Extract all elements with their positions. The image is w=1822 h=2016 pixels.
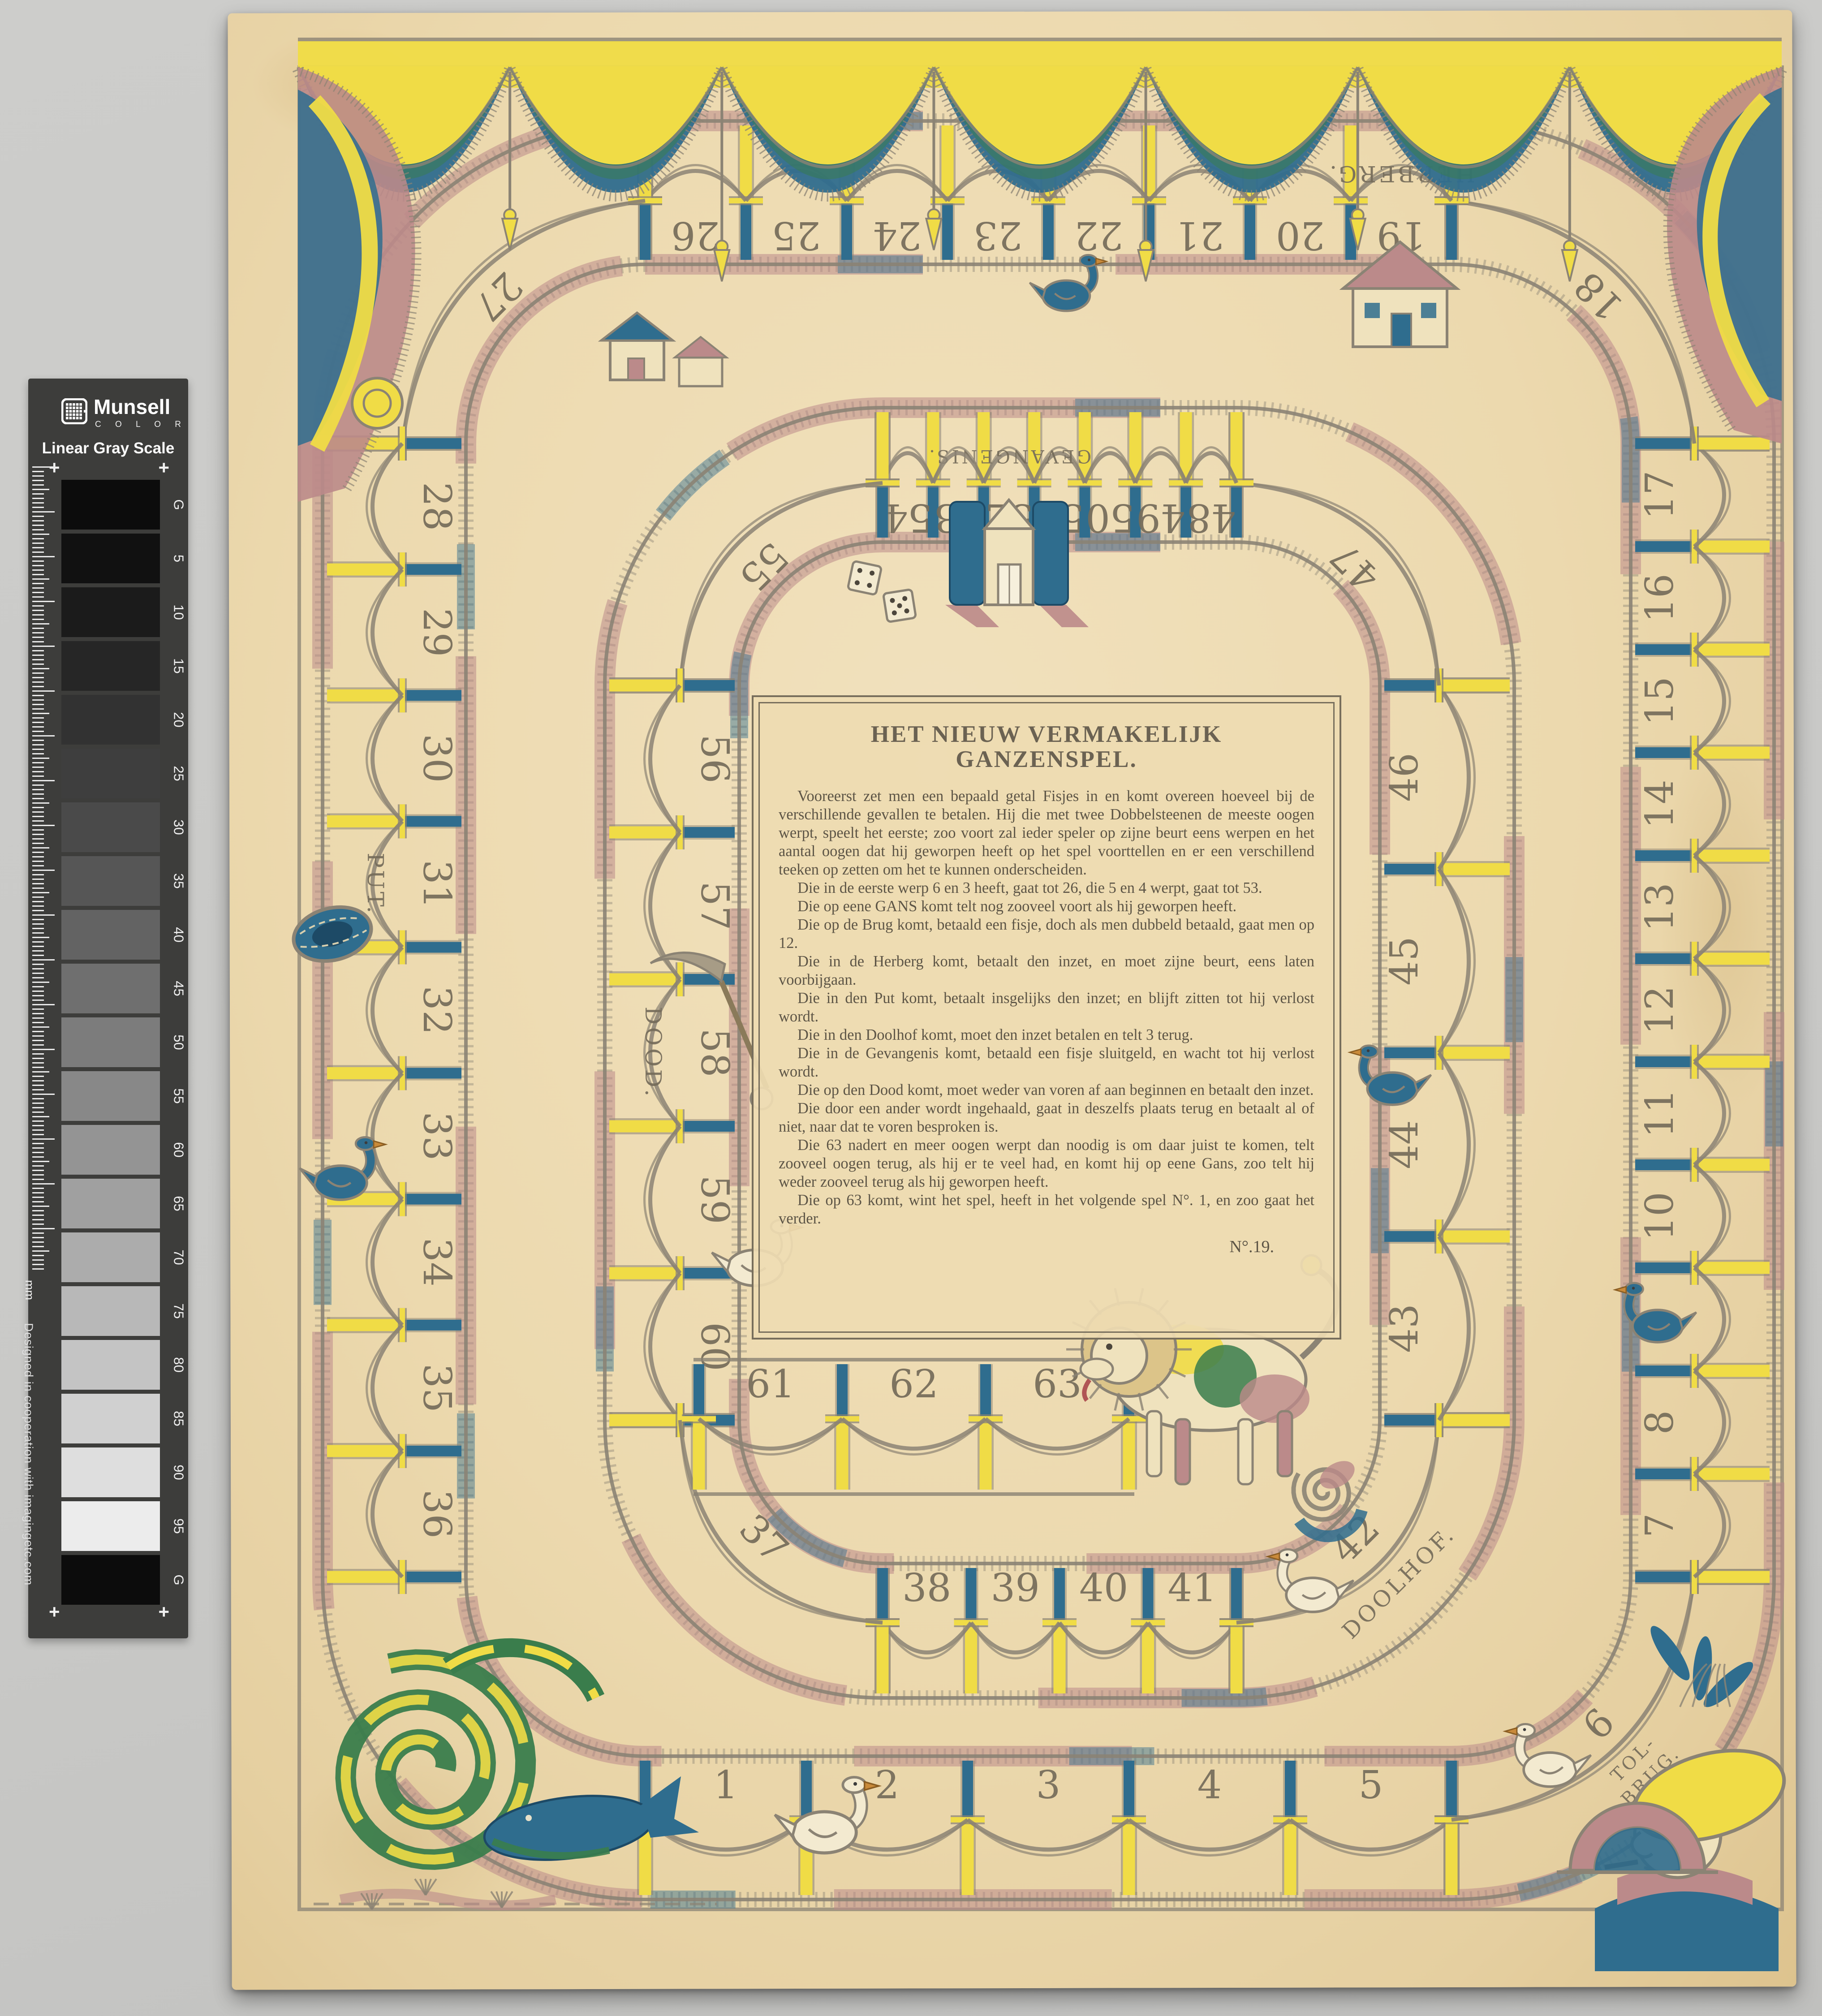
space-number: 24 (873, 213, 922, 258)
space-7: 7 (1637, 1513, 1682, 1538)
rule-paragraph: Vooreerst zet men een bepaald getal Fisj… (779, 787, 1314, 879)
space-label: DOOD. (640, 1007, 666, 1099)
arch-swag (1129, 1820, 1290, 1850)
gray-patch (61, 1071, 160, 1121)
space-number: 25 (772, 213, 821, 258)
gray-patch (61, 1340, 160, 1390)
space-number: 28 (414, 482, 459, 531)
space-label-text: PUT. (362, 853, 388, 916)
space-10: 10 (1637, 1192, 1682, 1241)
gray-patch (61, 802, 160, 852)
space-4: 4 (1197, 1763, 1222, 1808)
gray-patch-label: 55 (154, 1086, 204, 1106)
gray-patch-label: 40 (154, 925, 204, 945)
space-number: 58 (692, 1028, 737, 1077)
space-8: 8 (1637, 1410, 1682, 1435)
space-number: 41 (1168, 1566, 1217, 1611)
arch-swag (650, 685, 681, 832)
space-31: 31 (414, 860, 459, 909)
space-49: 49 (1136, 495, 1185, 540)
gray-patch (61, 587, 160, 637)
arch-swag (373, 444, 403, 569)
arch-swag (1439, 1236, 1469, 1420)
arch-swag (373, 569, 403, 695)
space-48: 48 (1187, 495, 1236, 540)
gray-patch-label: 15 (154, 656, 204, 676)
space-54: 54 (883, 495, 932, 540)
space-45: 45 (1382, 936, 1427, 985)
gray-patch (61, 856, 160, 906)
space-number: 8 (1637, 1410, 1682, 1435)
gray-patch-label: 50 (154, 1033, 204, 1052)
gray-patch-label: 25 (154, 764, 204, 784)
munsell-brand-text: Munsell (94, 395, 170, 419)
gray-patch-label: G (154, 1570, 204, 1590)
rule-paragraph: Die op eene GANS komt telt nog zooveel v… (779, 897, 1314, 916)
space-23: 23 (973, 213, 1022, 258)
space-32: 32 (414, 986, 459, 1034)
rule-paragraph: Die in de Herberg komt, betaalt den inze… (779, 952, 1314, 989)
arch-swag (1290, 1820, 1452, 1850)
space-number: 22 (1074, 213, 1123, 258)
space-number: 60 (692, 1322, 737, 1371)
munsell-logo-icon (61, 398, 87, 424)
arch-swag (1439, 869, 1469, 1053)
millimeter-ruler (32, 466, 59, 1273)
space-44: 44 (1382, 1120, 1427, 1169)
arch-swag (373, 1199, 403, 1325)
registration-plus-mark: + (49, 1602, 60, 1621)
gray-patch (61, 910, 160, 960)
space-number: 33 (414, 1111, 459, 1160)
rosette-icon (352, 378, 402, 428)
gray-patch (61, 1179, 160, 1228)
space-12: 12 (1637, 986, 1682, 1034)
space-number: 39 (991, 1566, 1040, 1611)
arch-swag (373, 947, 403, 1073)
space-number: 48 (1187, 495, 1236, 540)
space-29: 29 (414, 608, 459, 657)
tassel-icon (926, 219, 941, 250)
gray-patch-label: 30 (154, 818, 204, 837)
space-41: 41 (1168, 1566, 1217, 1611)
gray-patch (61, 695, 160, 745)
space-14: 14 (1637, 780, 1682, 828)
space-25: 25 (772, 213, 821, 258)
rules-panel: HET NIEUW VERMAKELIJK GANZENSPEL. Vooree… (752, 695, 1341, 1340)
rule-paragraph: Die in den Put komt, betaalt insgelijks … (779, 989, 1314, 1026)
rule-paragraph: Die in de Gevangenis komt, betaald een f… (779, 1044, 1314, 1081)
space-number: 31 (414, 860, 459, 909)
space-50: 50 (1085, 495, 1134, 540)
gray-patch (61, 1125, 160, 1175)
goose-icon (300, 1137, 386, 1200)
prison-icon (945, 500, 1089, 627)
arch-swag (986, 1419, 1129, 1449)
gray-patch-label: G (154, 495, 204, 515)
space-38: 38 (902, 1566, 951, 1611)
space-number: 3 (1036, 1763, 1061, 1808)
space-61: 61 (746, 1362, 795, 1407)
space-34: 34 (414, 1238, 459, 1287)
ruler-unit-label: mm (22, 1280, 36, 1300)
space-number: 50 (1085, 495, 1134, 540)
gray-patch (61, 1286, 160, 1336)
registration-plus-mark: + (158, 1602, 169, 1621)
arch-swag (842, 1419, 986, 1449)
curtain-swag (1358, 66, 1570, 164)
space-15: 15 (1637, 676, 1682, 725)
arch-swag (650, 1126, 681, 1273)
space-1: 1 (714, 1763, 738, 1808)
space-number: 17 (1637, 470, 1682, 519)
gray-patch-label: 75 (154, 1301, 204, 1321)
curtain-swag (1146, 66, 1358, 164)
space-36: 36 (414, 1490, 459, 1538)
edition-number: N°.19. (779, 1238, 1314, 1256)
gray-patch (61, 1501, 160, 1551)
rule-paragraph: Die door een ander wordt ingehaald, gaat… (779, 1099, 1314, 1136)
space-number: 16 (1637, 573, 1682, 622)
strip-credit-text: Designed in cooperation with imagingetc.… (22, 1323, 35, 1585)
rule-paragraph: Die 63 nadert en meer oogen werpt dan no… (779, 1136, 1314, 1191)
gray-patch-label: 10 (154, 603, 204, 622)
space-number: 13 (1637, 883, 1682, 931)
space-number: 15 (1637, 676, 1682, 725)
space-58: 58 (692, 1028, 737, 1077)
space-46: 46 (1382, 753, 1427, 801)
space-21: 21 (1175, 213, 1224, 258)
gray-patch-label: 95 (154, 1516, 204, 1536)
space-number: 36 (414, 1490, 459, 1538)
gray-patch-label: 70 (154, 1248, 204, 1267)
space-number: 63 (1033, 1362, 1081, 1407)
gray-patch (61, 749, 160, 798)
space-39: 39 (991, 1566, 1040, 1611)
arch-swag (1439, 685, 1469, 869)
space-label-text: DOOD. (640, 1007, 666, 1099)
space-number: 10 (1637, 1192, 1682, 1241)
registration-plus-mark: + (158, 458, 169, 477)
space-13: 13 (1637, 883, 1682, 931)
tassel-icon (1562, 250, 1577, 281)
space-number: 26 (671, 213, 720, 258)
space-20: 20 (1276, 213, 1325, 258)
space-22: 22 (1074, 213, 1123, 258)
space-35: 35 (414, 1364, 459, 1413)
dice-icon (848, 561, 916, 622)
space-number: 43 (1382, 1304, 1427, 1353)
gray-patch-label: 60 (154, 1140, 204, 1160)
gray-patch (61, 1555, 160, 1605)
gray-patch-label: 20 (154, 710, 204, 730)
rule-paragraph: Die in de eerste werp 6 en 3 heeft, gaat… (779, 879, 1314, 897)
space-3: 3 (1036, 1763, 1061, 1808)
space-57: 57 (692, 881, 737, 930)
arch-swag (968, 1820, 1129, 1850)
space-17: 17 (1637, 470, 1682, 519)
space-number: 54 (883, 495, 932, 540)
feather-icon (1645, 1621, 1696, 1685)
space-number: 35 (414, 1364, 459, 1413)
arch-swag (373, 695, 403, 821)
space-number: 23 (973, 213, 1022, 258)
curtain-swag (934, 66, 1146, 164)
space-63: 63 (1033, 1362, 1081, 1407)
gray-patch (61, 641, 160, 691)
space-number: 7 (1637, 1513, 1682, 1538)
space-26: 26 (671, 213, 720, 258)
arch-swag (1439, 1053, 1469, 1236)
gray-patch-label: 80 (154, 1355, 204, 1375)
gray-patch (61, 964, 160, 1013)
space-56: 56 (692, 734, 737, 783)
space-59: 59 (692, 1175, 737, 1224)
gray-patch (61, 1447, 160, 1497)
space-label: PUT. (362, 853, 388, 916)
space-number: 30 (414, 734, 459, 783)
space-number: 11 (1637, 1089, 1682, 1137)
arch-swag (650, 1273, 681, 1420)
space-number: 5 (1359, 1763, 1383, 1808)
arch-swag (373, 1073, 403, 1199)
space-number: 29 (414, 608, 459, 657)
munsell-gray-scale-strip: Munsell C O L O R Linear Gray Scale + + … (28, 379, 188, 1638)
gray-patch-label: 5 (154, 549, 204, 569)
rule-paragraph: Die in den Doolhof komt, moet den inzet … (779, 1026, 1314, 1044)
space-number: 45 (1382, 936, 1427, 985)
space-number: 1 (714, 1763, 738, 1808)
space-number: 46 (1382, 753, 1427, 801)
space-28: 28 (414, 482, 459, 531)
munsell-color-text: C O L O R (95, 420, 187, 430)
space-number: 61 (746, 1362, 795, 1407)
gray-scale-title: Linear Gray Scale (28, 439, 188, 457)
space-number: 40 (1079, 1566, 1128, 1611)
space-number: 34 (414, 1238, 459, 1287)
gray-patch (61, 534, 160, 583)
space-24: 24 (873, 213, 922, 258)
rule-paragraph: Die op den Dood komt, moet weder van vor… (779, 1081, 1314, 1099)
space-number: 38 (902, 1566, 951, 1611)
space-number: 62 (889, 1362, 938, 1407)
space-5: 5 (1359, 1763, 1383, 1808)
space-number: 20 (1276, 213, 1325, 258)
space-16: 16 (1637, 573, 1682, 622)
gray-patch-label: 35 (154, 871, 204, 891)
space-number: 44 (1382, 1120, 1427, 1169)
gray-patch (61, 1232, 160, 1282)
space-40: 40 (1079, 1566, 1128, 1611)
curtain-swag (510, 66, 722, 164)
space-number: 57 (692, 881, 737, 930)
space-number: 14 (1637, 780, 1682, 828)
space-number: 12 (1637, 986, 1682, 1034)
gray-patch-label: 65 (154, 1194, 204, 1214)
space-number: 56 (692, 734, 737, 783)
house-icon (601, 313, 727, 386)
space-number: 59 (692, 1175, 737, 1224)
gray-patch-label: 90 (154, 1463, 204, 1482)
arch-swag (373, 1451, 403, 1577)
arch-swag (373, 1325, 403, 1451)
space-number: 4 (1197, 1763, 1222, 1808)
space-30: 30 (414, 734, 459, 783)
space-33: 33 (414, 1111, 459, 1160)
board-title: HET NIEUW VERMAKELIJK GANZENSPEL. (783, 722, 1310, 772)
space-number: 32 (414, 986, 459, 1034)
space-62: 62 (889, 1362, 938, 1407)
space-number: 21 (1175, 213, 1224, 258)
scanned-photo: 123456TOL-BRUG.78910111213141516171819HE… (0, 0, 1822, 2016)
gray-patch (61, 480, 160, 530)
rule-paragraph: Die op 63 komt, wint het spel, heeft in … (779, 1191, 1314, 1228)
gray-patch (61, 1394, 160, 1443)
gray-patch (61, 1017, 160, 1067)
space-60: 60 (692, 1322, 737, 1371)
rule-paragraph: Die op de Brug komt, betaald een fisje, … (779, 916, 1314, 952)
space-11: 11 (1637, 1089, 1682, 1137)
space-43: 43 (1382, 1304, 1427, 1353)
goose-icon (775, 1777, 879, 1853)
gray-patch-label: 85 (154, 1409, 204, 1429)
space-number: 49 (1136, 495, 1185, 540)
gray-patch-label: 45 (154, 979, 204, 999)
